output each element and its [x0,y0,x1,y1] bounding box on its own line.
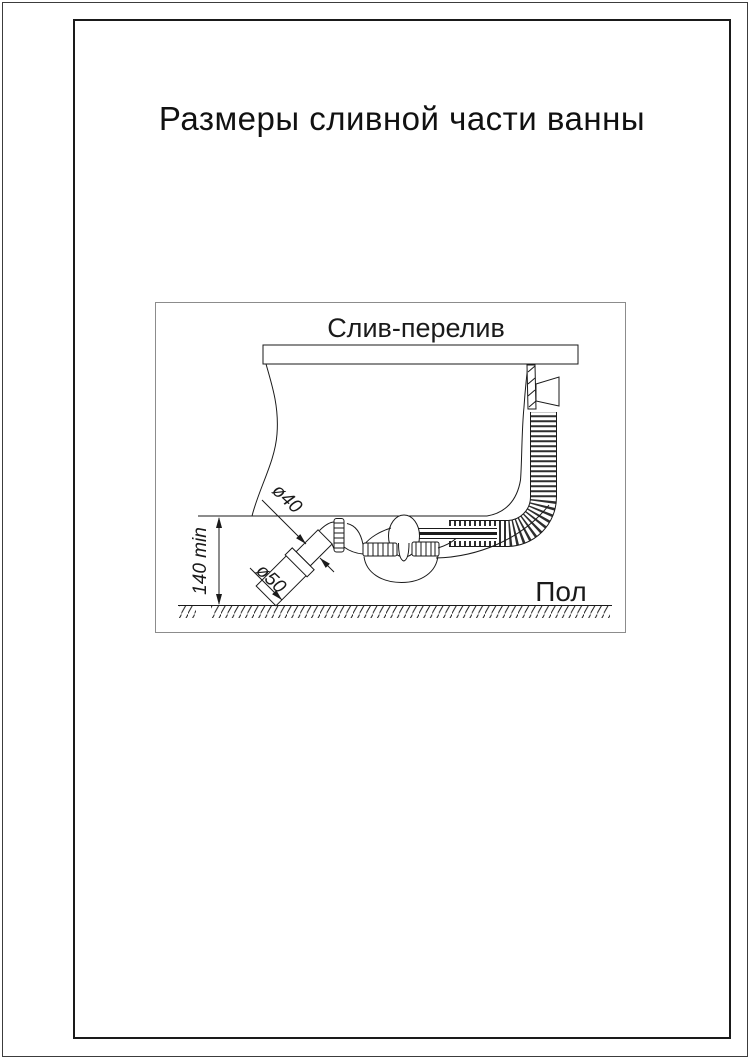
figure-title: Слив-перелив [327,313,505,343]
overflow-elbow [536,377,559,406]
trap-cup [364,556,438,583]
tee-lower-curve [344,547,363,554]
inlet-nut [334,519,344,553]
page-title: Размеры сливной части ванны [73,100,731,138]
bathtub-right-wall [487,365,528,516]
floor-hatch-left [179,606,196,618]
hose-corrugation [449,412,544,534]
overflow-fitting [527,365,559,409]
dimension-140min: 140 min [190,517,222,605]
hose-inner-outline [449,412,531,521]
tee-funnel-curve [364,528,391,545]
tee-inlet-curve [347,524,363,545]
tee-neck [399,543,410,561]
drain-trap [334,515,456,583]
bathtub-rim [263,345,578,364]
dim-140min-label: 140 min [190,527,211,595]
dim-d40-label: ø40 [268,480,307,518]
drain-diagram: Слив-перелив Пол [155,302,626,633]
overflow-tube [417,526,497,541]
floor-label: Пол [535,576,586,607]
document-page: Размеры сливной части ванны Слив-перелив… [0,0,750,1060]
floor-hatch-main [211,606,610,618]
